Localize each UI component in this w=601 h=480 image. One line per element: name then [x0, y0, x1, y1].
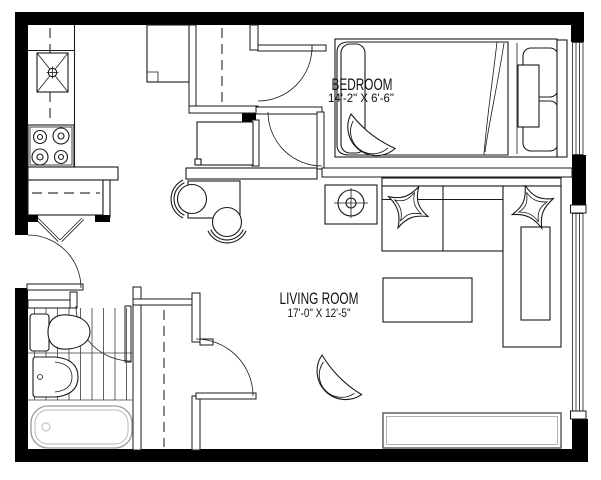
- bathroom-door-jamb: [70, 292, 77, 308]
- bedroom-door: [258, 45, 326, 101]
- kitchen-sink-icon: [37, 53, 68, 92]
- bathroom-door-leaf: [125, 306, 131, 362]
- hall-wall: [256, 107, 322, 114]
- entry-door-swing: [28, 235, 81, 288]
- headboard: [557, 40, 567, 157]
- bedroom-door-stub: [312, 45, 326, 51]
- hall-wall-return: [317, 112, 324, 169]
- entry-door-leaf: [27, 284, 83, 290]
- bedroom-label: BEDROOM 14'-2" X 6'-6": [328, 76, 394, 105]
- bedroom-door-swing: [258, 47, 312, 101]
- closet-wall-left: [189, 25, 196, 112]
- living-door-swing: [268, 112, 322, 166]
- hall-closet-door-leaf: [196, 393, 256, 399]
- window-sill-cap: [571, 411, 587, 419]
- hall-area: [195, 28, 253, 165]
- floor-plan: BEDROOM 14'-2" X 6'-6" LIVI: [0, 0, 601, 480]
- wall-bottom: [15, 449, 588, 462]
- bedroom-window: [573, 42, 584, 155]
- wall-left-lower: [15, 288, 28, 462]
- room-dimensions: 17'-0" X 12'-5": [288, 308, 351, 320]
- bedroom-living-wall: [322, 168, 572, 177]
- wall-right-bottom-corner: [572, 419, 588, 462]
- closet-wall-bottom: [189, 106, 258, 113]
- peninsula-cabinet: [28, 180, 103, 215]
- closet-wall-right: [250, 25, 258, 50]
- washer-handle: [195, 159, 201, 165]
- bathtub: [31, 406, 132, 448]
- hall-closet-door-swing: [196, 339, 253, 396]
- toilet-tank: [30, 314, 49, 351]
- floor-plan-drawing: BEDROOM 14'-2" X 6'-6" LIVI: [0, 0, 601, 480]
- bathroom: [28, 308, 164, 448]
- bedroom: BEDROOM 14'-2" X 6'-6": [328, 39, 567, 167]
- room-name: LIVING ROOM: [280, 290, 359, 308]
- bar-counter: [186, 168, 317, 179]
- peninsula-countertop: [28, 167, 118, 180]
- hall-closet-door: [196, 339, 256, 399]
- living-room-label: LIVING ROOM 17'-0" X 12'-5": [280, 290, 359, 320]
- peninsula-foot: [28, 215, 38, 222]
- tub-drain: [42, 423, 50, 431]
- windows: [571, 42, 587, 419]
- bathroom-sink: [33, 357, 78, 397]
- living-room: LIVING ROOM 17'-0" X 12'-5": [280, 176, 562, 448]
- hall-closet-wall-left: [133, 287, 141, 450]
- kitchen: [28, 25, 317, 242]
- window-sill-cap: [571, 205, 587, 213]
- living-door: [268, 112, 322, 166]
- peninsula-foot: [95, 215, 110, 222]
- entry-door: [27, 235, 83, 290]
- room-dimensions: 14'-2" X 6'-6": [328, 93, 394, 105]
- living-room-window: [573, 213, 584, 419]
- toilet: [30, 314, 90, 351]
- dining-area: [171, 180, 246, 243]
- room-name: BEDROOM: [332, 76, 393, 94]
- counter-peninsula: [28, 167, 118, 222]
- hall-closet-wall-right-upper: [192, 293, 200, 342]
- toilet-bowl: [48, 315, 90, 349]
- refrigerator-icon: [147, 25, 189, 82]
- hall-closet-wall-top: [133, 299, 200, 305]
- wall-right-top-corner: [571, 25, 584, 42]
- side-table-with-lamp: [325, 185, 377, 224]
- bifold-door-icon: [36, 218, 83, 242]
- bedroom-door-leaf: [258, 45, 312, 51]
- sofa-back: [382, 178, 561, 186]
- wall-right-mid-pier: [572, 155, 586, 205]
- wall-left-upper: [15, 12, 28, 235]
- folded-blanket: [518, 65, 539, 127]
- stove-burners-icon: [28, 125, 74, 167]
- fan-armchair: [306, 355, 362, 411]
- wall-top: [15, 12, 584, 25]
- coffee-table: [383, 278, 472, 322]
- hall-closet-wall-right-lower: [192, 396, 200, 450]
- peninsula-support: [103, 180, 110, 217]
- washer-unit: [195, 122, 253, 165]
- tv-console: [383, 413, 561, 448]
